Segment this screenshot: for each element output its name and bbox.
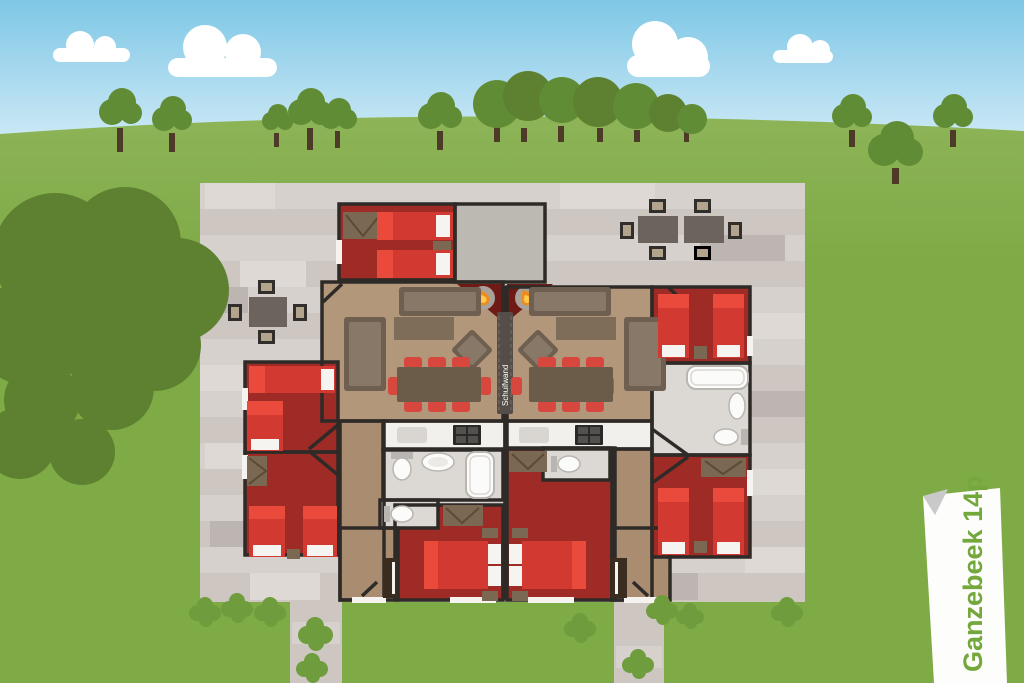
dining-table	[529, 367, 613, 402]
nightstand	[482, 528, 498, 538]
front-door-right	[612, 558, 627, 598]
toilet-icon	[558, 456, 580, 472]
scene-illustration: Schuifwand	[0, 0, 1024, 683]
toilet-icon	[714, 429, 748, 445]
sliding-wall: Schuifwand	[497, 312, 513, 414]
patio-table	[684, 216, 724, 243]
single-bed	[658, 488, 689, 555]
single-bed	[377, 250, 453, 278]
bungalow-floorplan-illustration: Schuifwand	[0, 0, 1024, 683]
single-bed	[249, 506, 285, 557]
sliding-wall-label: Schuifwand	[501, 365, 510, 406]
toilet-icon	[391, 506, 413, 522]
single-bed	[713, 488, 744, 555]
nightstand	[512, 591, 528, 601]
nightstand	[482, 591, 498, 601]
single-bed	[658, 294, 689, 358]
coffee-table	[556, 317, 616, 340]
nightstand	[694, 346, 707, 359]
washbasin-icon	[729, 393, 745, 419]
kitchen-sink	[519, 427, 549, 443]
bathtub-icon	[466, 452, 494, 498]
patio-chair	[694, 199, 711, 213]
bathtub-icon	[687, 366, 748, 389]
patio-table	[638, 216, 678, 243]
front-door-left	[383, 558, 398, 598]
wc-right-fixtures	[551, 456, 580, 472]
door-threshold	[624, 597, 658, 603]
patio-chair	[728, 222, 742, 239]
cooktop	[575, 425, 603, 445]
wardrobe	[247, 456, 267, 486]
patio-chair	[258, 330, 275, 344]
single-bed	[247, 401, 283, 451]
single-bed	[713, 294, 744, 358]
nightstand	[433, 241, 451, 250]
washbasin-icon	[422, 453, 454, 471]
cooktop	[453, 425, 481, 445]
patio-chair	[258, 280, 275, 294]
wc-left-fixtures	[384, 506, 413, 522]
patio-chair	[649, 246, 666, 260]
toilet-icon	[391, 452, 413, 480]
dining-table	[397, 367, 481, 402]
single-bed	[249, 366, 335, 393]
patio-chair	[293, 304, 307, 321]
nightstand	[694, 541, 707, 553]
storage-room-floor	[455, 204, 545, 282]
patio-chair	[228, 304, 242, 321]
patio-chair	[649, 199, 666, 213]
single-bed	[377, 212, 453, 240]
patio-chair	[694, 246, 711, 260]
nightstand	[512, 528, 528, 538]
coffee-table	[394, 317, 454, 340]
sofa	[399, 287, 481, 316]
kitchen-sink	[397, 427, 427, 443]
sofa	[344, 317, 386, 391]
single-bed	[303, 506, 337, 557]
nightstand	[287, 549, 300, 559]
door-threshold	[528, 597, 574, 603]
name-ribbon: Ganzebeek 14p	[923, 475, 1007, 683]
accommodation-name-label: Ganzebeek 14p	[958, 475, 988, 672]
patio-table	[249, 297, 287, 327]
sofa	[529, 287, 611, 316]
door-threshold	[352, 597, 386, 603]
patio-chair	[620, 222, 634, 239]
